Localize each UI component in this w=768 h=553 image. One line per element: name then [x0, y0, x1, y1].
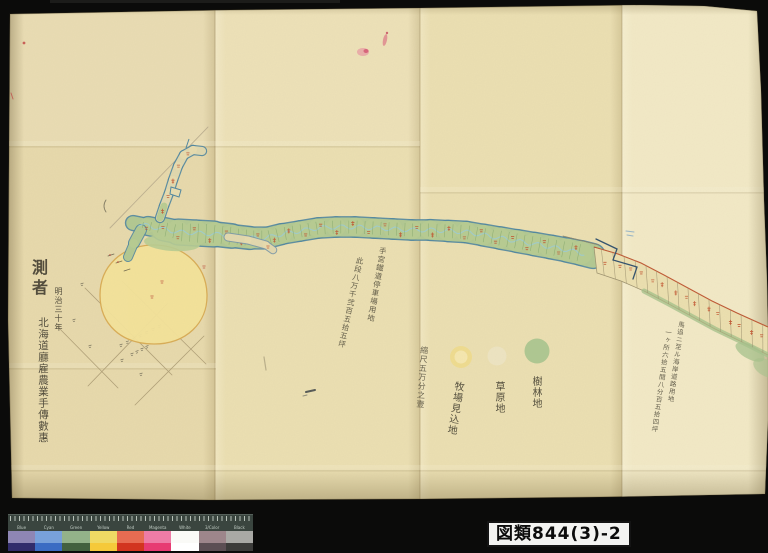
ruler-label: Yellow [90, 525, 117, 530]
archive-label: 図類844(3)-2 [487, 521, 631, 547]
patch-top-swatch [90, 531, 117, 543]
ruler-label: Blue [8, 525, 35, 530]
map-scan-canvas [0, 0, 768, 553]
patch-top-swatch [226, 531, 253, 543]
patch-bottom-swatch [62, 543, 89, 551]
ruler-label: Red [117, 525, 144, 530]
ruler-ticks [10, 516, 251, 521]
color-patch-4 [117, 531, 144, 551]
color-patch-6 [171, 531, 198, 551]
scanned-map-document: 測者 明治三十年 北海道廳雇農業手傳數惠 手宮鐵道停車場用地 此段八万千弐百五拾… [0, 0, 768, 553]
paper-grain [8, 4, 768, 500]
patch-bottom-swatch [199, 543, 226, 551]
ruler-labels: BlueCyanGreenYellowRedMagentaWhite3/Colo… [8, 525, 253, 530]
paper-surface [8, 0, 768, 553]
patch-bottom-swatch [8, 543, 35, 551]
patch-top-swatch [144, 531, 171, 543]
patch-top-swatch [62, 531, 89, 543]
patch-top-swatch [199, 531, 226, 543]
ruler-label: White [171, 525, 198, 530]
calibration-ruler: BlueCyanGreenYellowRedMagentaWhite3/Colo… [8, 514, 253, 531]
ruler-label: 3/Color [199, 525, 226, 530]
color-calibration-bar: BlueCyanGreenYellowRedMagentaWhite3/Colo… [8, 514, 253, 551]
patch-top-swatch [35, 531, 62, 543]
scanner-edge-glint [50, 0, 340, 3]
color-patch-0 [8, 531, 35, 551]
patch-bottom-swatch [90, 543, 117, 551]
ruler-label: Black [226, 525, 253, 530]
color-patch-1 [35, 531, 62, 551]
ruler-label: Magenta [144, 525, 171, 530]
color-patch-5 [144, 531, 171, 551]
color-patches [8, 531, 253, 551]
ruler-label: Cyan [35, 525, 62, 530]
patch-bottom-swatch [171, 543, 198, 551]
color-patch-2 [62, 531, 89, 551]
patch-top-swatch [171, 531, 198, 543]
patch-top-swatch [117, 531, 144, 543]
color-patch-3 [90, 531, 117, 551]
ruler-label: Green [62, 525, 89, 530]
color-patch-8 [226, 531, 253, 551]
color-patch-7 [199, 531, 226, 551]
patch-top-swatch [8, 531, 35, 543]
patch-bottom-swatch [144, 543, 171, 551]
patch-bottom-swatch [117, 543, 144, 551]
patch-bottom-swatch [35, 543, 62, 551]
patch-bottom-swatch [226, 543, 253, 551]
